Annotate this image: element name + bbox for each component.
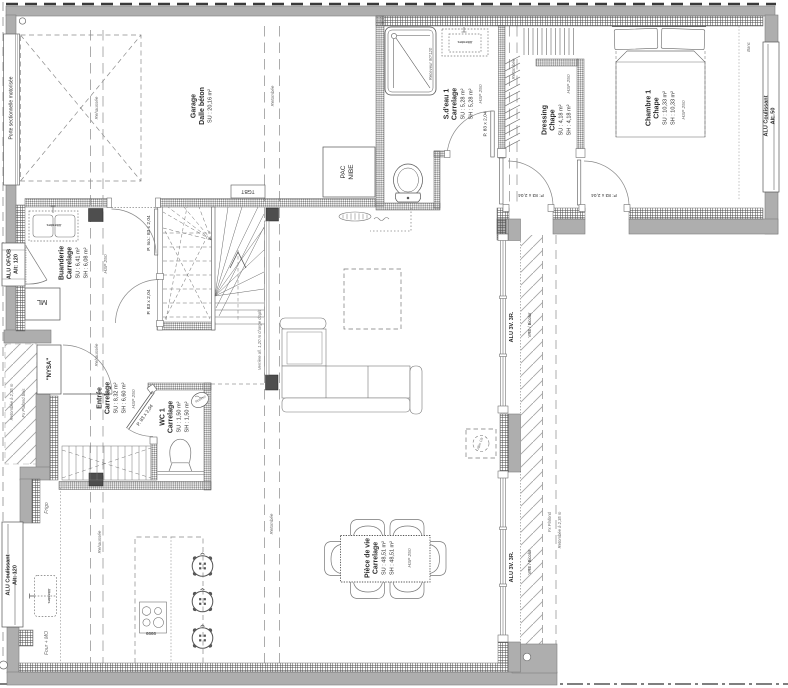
svg-text:SU : 10,33 m²: SU : 10,33 m²: [663, 91, 669, 125]
svg-text:Retombée: Retombée: [269, 513, 274, 534]
svg-text:Rehaussée: Rehaussée: [97, 530, 102, 553]
svg-text:Buanderie: Buanderie: [59, 246, 66, 280]
svg-text:HSP 250: HSP 250: [103, 254, 109, 273]
svg-text:Carrelage: Carrelage: [373, 542, 380, 574]
svg-text:"NYSA": "NYSA": [47, 358, 53, 381]
svg-text:NIBE: NIBE: [348, 164, 355, 180]
svg-text:SH : 6,60 m²: SH : 6,60 m²: [122, 382, 128, 413]
svg-text:SH : 48,51 m²: SH : 48,51 m²: [390, 541, 396, 575]
svg-text:HSP 250: HSP 250: [131, 389, 137, 408]
svg-text:S.d'eau 1: S.d'eau 1: [444, 89, 451, 120]
svg-text:Rehaussée: Rehaussée: [94, 343, 99, 366]
svg-text:Carrelage: Carrelage: [452, 88, 459, 120]
svg-text:ALU OF/OB: ALU OF/OB: [7, 249, 13, 279]
svg-text:SU : 48,51 m²: SU : 48,51 m²: [382, 541, 388, 575]
svg-text:WC 1: WC 1: [160, 408, 167, 426]
svg-text:Attentes: Attentes: [47, 223, 62, 228]
svg-text:Chape: Chape: [550, 109, 557, 131]
svg-text:Porte sectionnelle motorisée: Porte sectionnelle motorisée: [9, 76, 15, 139]
svg-text:Retombée à 2,35 m: Retombée à 2,35 m: [557, 511, 562, 548]
svg-text:Alt: 120: Alt: 120: [14, 254, 20, 274]
svg-text:Alt: 120: Alt: 120: [13, 565, 19, 585]
svg-text:Banc: Banc: [746, 41, 751, 51]
svg-text:Dalle béton: Dalle béton: [199, 87, 206, 125]
svg-text:TGBT: TGBT: [241, 188, 254, 194]
svg-text:Chape: Chape: [654, 97, 661, 119]
svg-text:SU : 1,50 m²: SU : 1,50 m²: [177, 401, 183, 432]
svg-text:SH : 5,28 m²: SH : 5,28 m²: [469, 88, 475, 119]
svg-text:P: 83 x 2,04: P: 83 x 2,04: [591, 192, 617, 198]
svg-text:HSP 250: HSP 250: [478, 84, 484, 103]
svg-text:Rehaussée: Rehaussée: [94, 96, 99, 119]
svg-text:SH : 1,50 m²: SH : 1,50 m²: [185, 401, 191, 432]
svg-text:SH : 4,18 m²: SH : 4,18 m²: [567, 104, 573, 135]
svg-text:Garage: Garage: [191, 94, 198, 118]
svg-text:Carrelage: Carrelage: [105, 382, 112, 414]
svg-text:Retombée à 2,35 m: Retombée à 2,35 m: [9, 383, 14, 420]
svg-text:PAC: PAC: [340, 165, 347, 178]
svg-text:Carrelage: Carrelage: [168, 401, 175, 433]
svg-text:Pièce de vie: Pièce de vie: [365, 538, 372, 578]
svg-text:HSP 250: HSP 250: [407, 548, 413, 567]
svg-text:ALU Coulissant: ALU Coulissant: [764, 95, 770, 136]
svg-text:9999: 9999: [145, 631, 156, 636]
svg-text:Alt: 50: Alt: 50: [771, 108, 777, 125]
svg-text:P. 83 x 2,04: P. 83 x 2,04: [483, 111, 489, 136]
svg-text:Attentes: Attentes: [47, 589, 52, 604]
svg-text:SU : 20,16 m²: SU : 20,16 m²: [208, 89, 214, 123]
svg-text:ALU 3V. 3R.: ALU 3V. 3R.: [509, 551, 515, 582]
svg-text:Fx Plafond: Fx Plafond: [547, 511, 552, 532]
svg-text:Receveur 90*120: Receveur 90*120: [428, 47, 433, 80]
svg-text:Four + MO: Four + MO: [44, 631, 50, 655]
svg-text:SH : 6,08 m²: SH : 6,08 m²: [84, 247, 90, 278]
svg-text:SH : 10,33 m²: SH : 10,33 m²: [671, 91, 677, 125]
svg-text:P: 83 x 2,04: P: 83 x 2,04: [518, 192, 544, 198]
svg-text:VRE / Bicolor: VRE / Bicolor: [527, 549, 532, 575]
svg-text:Entrée: Entrée: [97, 387, 104, 409]
svg-text:SU : 8,32 m²: SU : 8,32 m²: [114, 382, 120, 413]
svg-text:P. Iso.: 83 x 2,04: P. Iso.: 83 x 2,04: [146, 215, 152, 251]
svg-text:Verrière all. 1,20 m charge d': Verrière all. 1,20 m charge d'aplt: [257, 309, 262, 370]
svg-text:Fx Plafond bois: Fx Plafond bois: [21, 388, 26, 418]
svg-text:P. 83 x 2,04: P. 83 x 2,04: [146, 289, 152, 314]
svg-text:Carrelage: Carrelage: [67, 247, 74, 279]
svg-text:SU : 6,41 m²: SU : 6,41 m²: [76, 247, 82, 278]
svg-text:Retombée: Retombée: [270, 85, 275, 106]
svg-text:Frigo: Frigo: [44, 502, 50, 514]
svg-text:VRE / Bicolor: VRE / Bicolor: [527, 312, 532, 338]
svg-text:Dressing: Dressing: [542, 105, 549, 135]
svg-text:SU : 4,18 m²: SU : 4,18 m²: [559, 104, 565, 135]
svg-text:SU : 5,28 m²: SU : 5,28 m²: [461, 88, 467, 119]
svg-text:Retombée: Retombée: [511, 58, 516, 79]
svg-text:ML: ML: [37, 298, 47, 307]
svg-text:HSP 250: HSP 250: [681, 100, 687, 119]
svg-text:Attentes: Attentes: [458, 40, 473, 45]
svg-text:HSP 250: HSP 250: [566, 74, 572, 93]
svg-text:Chambre 1: Chambre 1: [646, 90, 653, 126]
svg-text:ALU 3V. 3R.: ALU 3V. 3R.: [509, 311, 515, 342]
svg-text:ALU Coulissant: ALU Coulissant: [6, 554, 12, 595]
